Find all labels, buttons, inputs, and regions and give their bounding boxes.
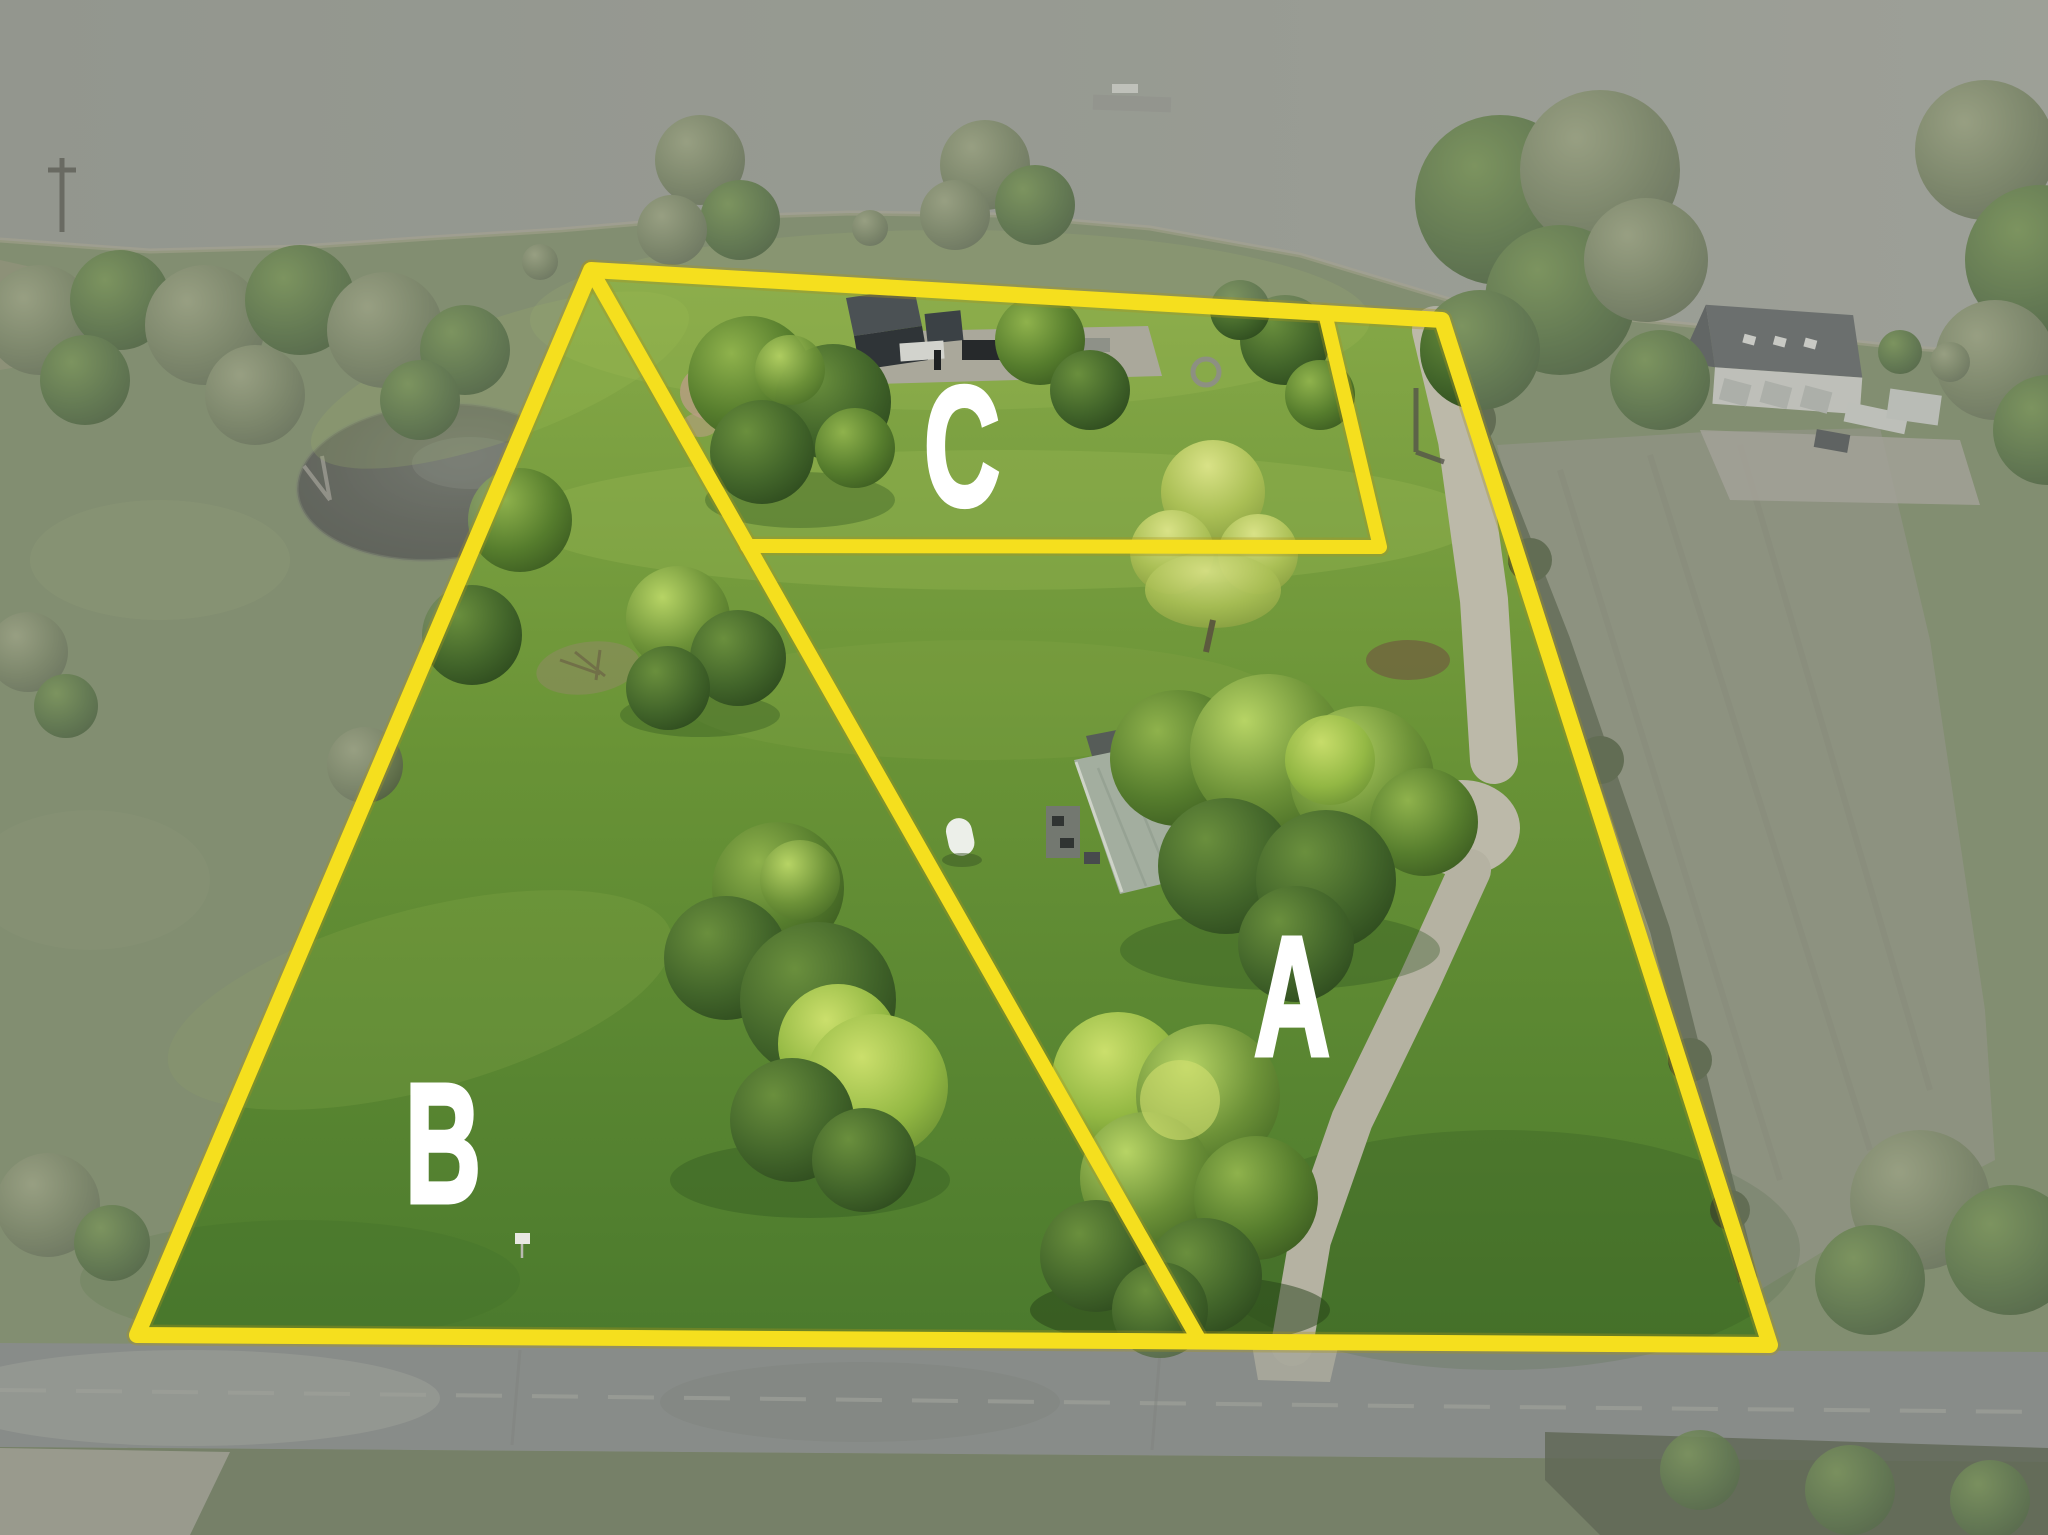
parcel-label-a: A bbox=[1254, 901, 1330, 1091]
dirt-patch bbox=[1366, 640, 1450, 680]
parcel-label-b: B bbox=[405, 1048, 481, 1238]
shed bbox=[925, 310, 964, 344]
parcel-label-c: C bbox=[924, 351, 1000, 541]
aerial-photo-canvas: C A B bbox=[0, 0, 2048, 1535]
aerial-property-photo: C A B bbox=[0, 0, 2048, 1535]
ac-unit bbox=[1084, 852, 1100, 864]
deck bbox=[1046, 806, 1080, 858]
